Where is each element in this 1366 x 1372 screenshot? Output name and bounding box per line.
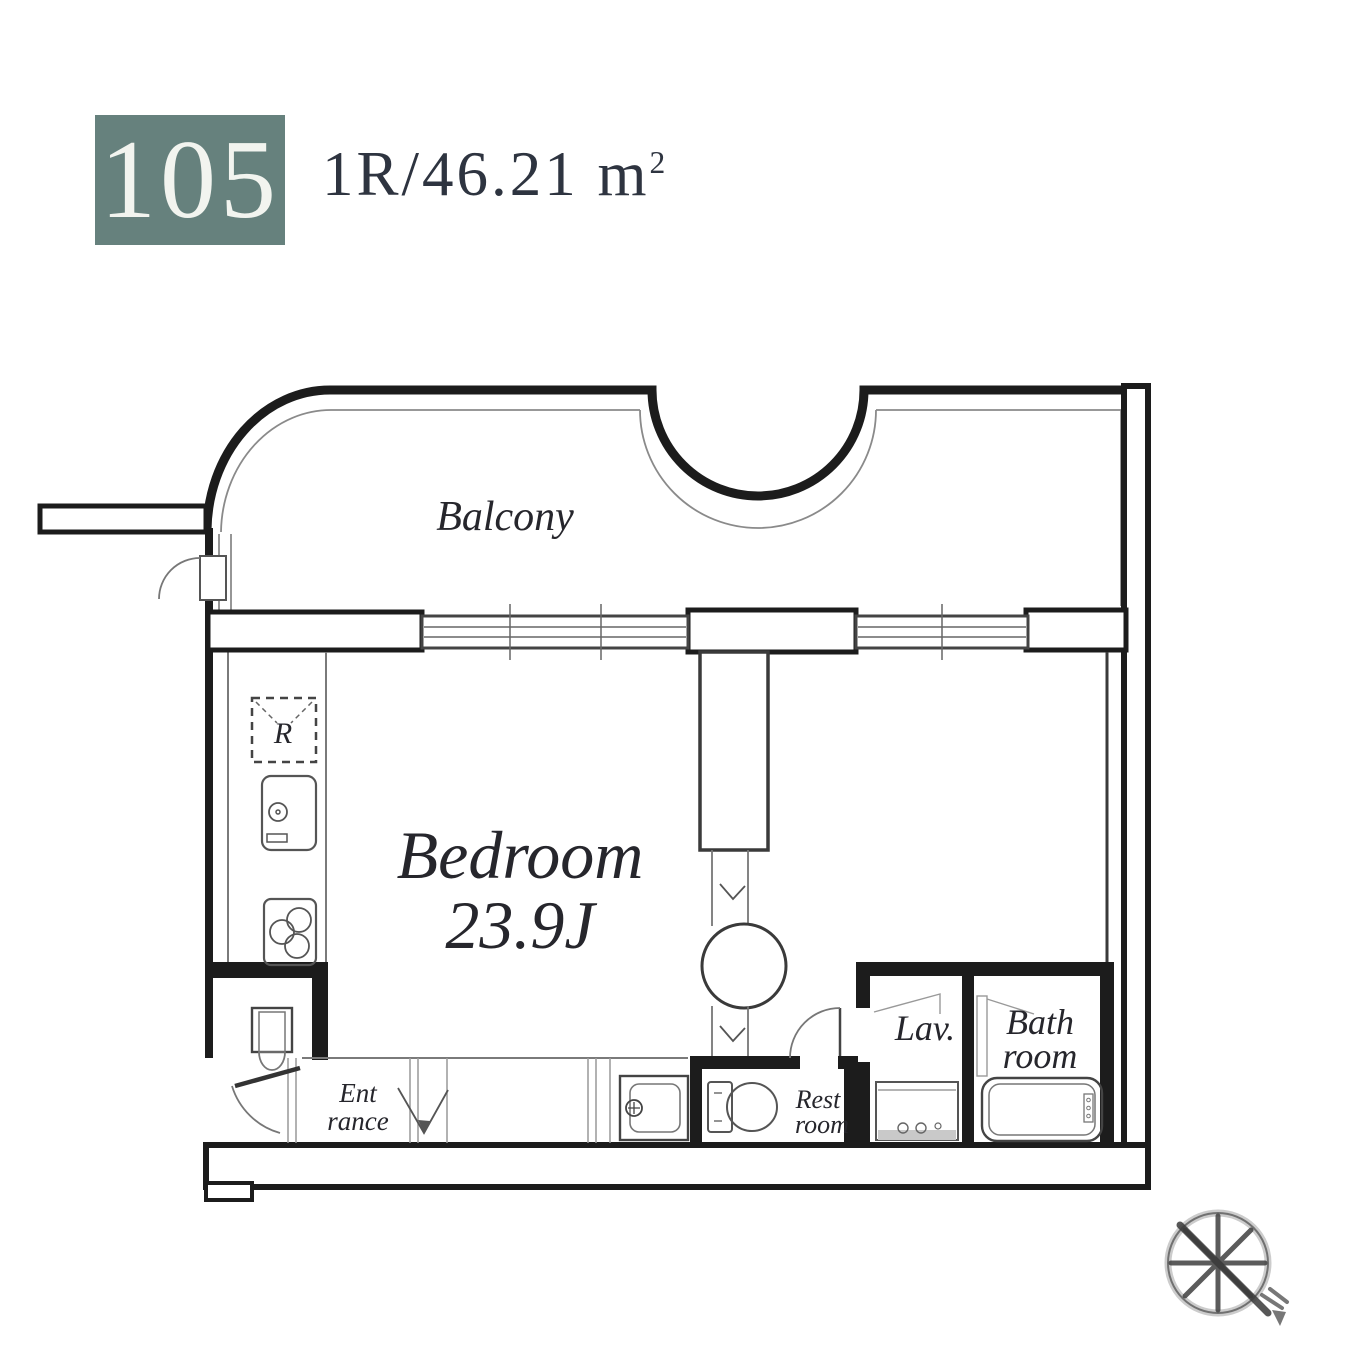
sliding-door-arrow (720, 884, 745, 899)
balcony-outer-wall (207, 390, 1146, 530)
window-left (422, 604, 688, 660)
balcony-label: Balcony (436, 494, 574, 540)
compass-rose-icon (1168, 1213, 1287, 1326)
entrance-label-line1: Ent (338, 1078, 378, 1108)
window-right (856, 604, 1028, 660)
lavatory-label: Lav. (894, 1008, 955, 1048)
balcony-side-wall (40, 506, 206, 532)
room-partition (700, 652, 786, 1056)
restroom-label-line2: room (795, 1110, 849, 1139)
bathroom-label-line2: room (1003, 1036, 1078, 1076)
right-outer-wall (1124, 386, 1148, 1186)
bedroom-size-label: 23.9J (445, 887, 597, 963)
restroom-door (790, 1008, 840, 1058)
bottom-outer-wall (206, 1145, 1148, 1200)
bedroom-label: Bedroom (397, 817, 644, 893)
water-heater (252, 1008, 292, 1070)
stove (264, 899, 316, 965)
floor-plan-drawing: Balcony Bedroom 23.9J R Ent rance Rest r… (0, 0, 1366, 1372)
balcony-partition-door (159, 556, 226, 600)
balcony-railing (219, 410, 1121, 610)
floor-plan-page: { "header": { "unit_number": "105", "lay… (0, 0, 1366, 1372)
kitchen-sink (262, 776, 316, 850)
bathtub (982, 1078, 1102, 1141)
structural-column (702, 924, 786, 1008)
washing-machine-pan (620, 1076, 688, 1140)
hall-door-mark (398, 1088, 448, 1133)
entrance-label-line2: rance (327, 1106, 388, 1136)
vanity-sink (876, 1082, 958, 1140)
toilet (708, 1082, 777, 1132)
entrance-door (232, 1068, 300, 1133)
sliding-door-arrow (720, 1026, 745, 1041)
kitchen-area (208, 652, 328, 1070)
refrigerator-label: R (273, 717, 292, 750)
